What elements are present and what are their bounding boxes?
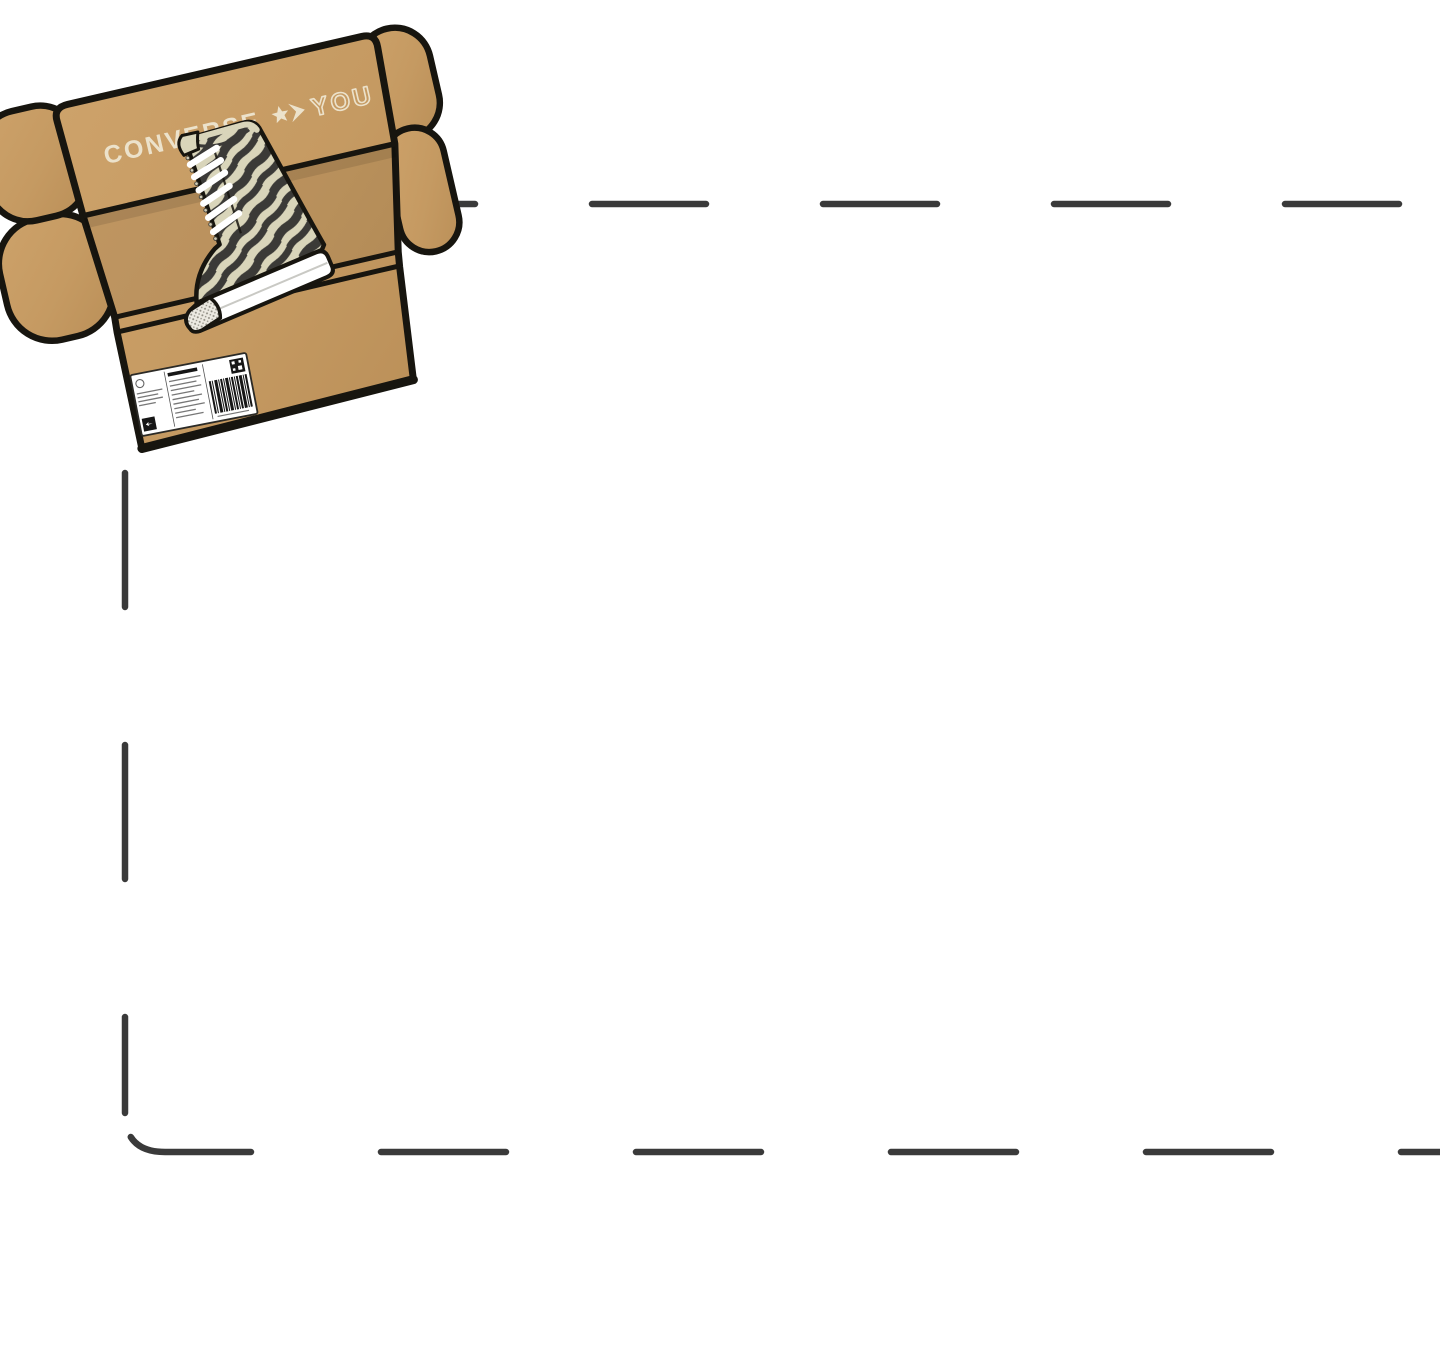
page: CONVERSE YOU bbox=[0, 0, 1440, 1348]
dashed-frame-bottom bbox=[125, 1113, 1440, 1152]
qr-code bbox=[229, 357, 245, 373]
shoebox-illustration: CONVERSE YOU bbox=[0, 0, 520, 480]
label-logo-square bbox=[142, 416, 157, 431]
